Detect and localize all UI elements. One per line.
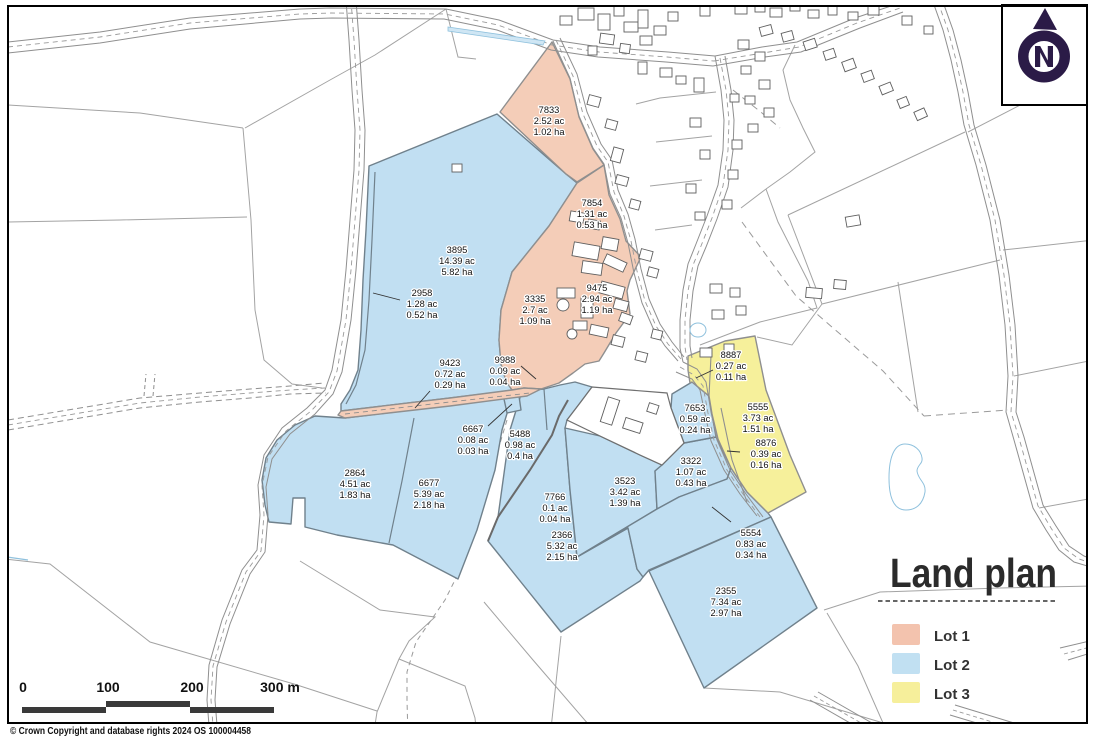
svg-text:2.52 ac: 2.52 ac [534, 116, 565, 126]
svg-text:Lot 2: Lot 2 [934, 657, 970, 674]
svg-text:1.07 ac: 1.07 ac [676, 467, 707, 477]
svg-text:2958: 2958 [412, 288, 433, 298]
svg-text:3523: 3523 [615, 476, 636, 486]
svg-text:5555: 5555 [748, 402, 769, 412]
svg-text:9988: 9988 [495, 355, 516, 365]
svg-text:0.43 ha: 0.43 ha [675, 478, 707, 488]
svg-text:© Crown Copyright and database: © Crown Copyright and database rights 20… [10, 725, 251, 737]
svg-text:0.34 ha: 0.34 ha [735, 550, 767, 560]
svg-text:2.18 ha: 2.18 ha [413, 500, 445, 510]
svg-text:5488: 5488 [510, 429, 531, 439]
svg-text:1.19 ha: 1.19 ha [581, 305, 613, 315]
svg-text:7766: 7766 [545, 492, 566, 502]
svg-text:3.73 ac: 3.73 ac [743, 413, 774, 423]
svg-text:0.52 ha: 0.52 ha [406, 310, 438, 320]
svg-text:0.98 ac: 0.98 ac [505, 440, 536, 450]
svg-text:3.42 ac: 3.42 ac [610, 487, 641, 497]
svg-text:1.02 ha: 1.02 ha [533, 127, 565, 137]
svg-text:6677: 6677 [419, 478, 440, 488]
svg-text:5554: 5554 [741, 528, 762, 538]
svg-text:200: 200 [180, 679, 204, 695]
svg-text:0.83 ac: 0.83 ac [736, 539, 767, 549]
svg-text:9423: 9423 [440, 358, 461, 368]
svg-text:0.09 ac: 0.09 ac [490, 366, 521, 376]
svg-text:2355: 2355 [716, 586, 737, 596]
svg-text:1.28 ac: 1.28 ac [407, 299, 438, 309]
svg-text:300 m: 300 m [260, 679, 300, 695]
svg-text:8887: 8887 [721, 350, 742, 360]
svg-text:100: 100 [96, 679, 120, 695]
svg-text:0.39 ac: 0.39 ac [751, 449, 782, 459]
svg-text:Lot 3: Lot 3 [934, 686, 970, 703]
svg-text:2.7 ac: 2.7 ac [522, 305, 548, 315]
svg-text:Lot 1: Lot 1 [934, 628, 970, 645]
svg-text:2.94 ac: 2.94 ac [582, 294, 613, 304]
svg-text:0.16 ha: 0.16 ha [750, 460, 782, 470]
svg-text:0.04 ha: 0.04 ha [539, 514, 571, 524]
svg-text:6667: 6667 [463, 424, 484, 434]
svg-text:1.83 ha: 1.83 ha [339, 490, 371, 500]
svg-text:2366: 2366 [552, 530, 573, 540]
svg-text:1.09 ha: 1.09 ha [519, 316, 551, 326]
svg-text:3322: 3322 [681, 456, 702, 466]
svg-text:0: 0 [19, 679, 27, 695]
svg-text:0.04 ha: 0.04 ha [489, 377, 521, 387]
svg-text:0.24 ha: 0.24 ha [679, 425, 711, 435]
svg-text:0.03 ha: 0.03 ha [457, 446, 489, 456]
svg-text:4.51 ac: 4.51 ac [340, 479, 371, 489]
svg-text:1.31 ac: 1.31 ac [577, 209, 608, 219]
svg-text:5.39 ac: 5.39 ac [414, 489, 445, 499]
svg-text:8876: 8876 [756, 438, 777, 448]
svg-text:2.15 ha: 2.15 ha [546, 552, 578, 562]
svg-text:7833: 7833 [539, 105, 560, 115]
svg-text:3335: 3335 [525, 294, 546, 304]
svg-text:5.32 ac: 5.32 ac [547, 541, 578, 551]
svg-text:0.29 ha: 0.29 ha [434, 380, 466, 390]
svg-text:1.51 ha: 1.51 ha [742, 424, 774, 434]
svg-text:0.72 ac: 0.72 ac [435, 369, 466, 379]
svg-text:0.4 ha: 0.4 ha [507, 451, 534, 461]
svg-text:9475: 9475 [587, 283, 608, 293]
svg-text:0.1 ac: 0.1 ac [542, 503, 568, 513]
svg-text:3895: 3895 [447, 245, 468, 255]
svg-text:2864: 2864 [345, 468, 366, 478]
svg-text:0.11 ha: 0.11 ha [716, 372, 747, 382]
svg-text:0.27 ac: 0.27 ac [716, 361, 747, 371]
svg-text:14.39 ac: 14.39 ac [439, 256, 475, 266]
svg-text:0.59 ac: 0.59 ac [680, 414, 711, 424]
svg-text:Land plan: Land plan [890, 550, 1057, 596]
svg-text:1.39 ha: 1.39 ha [609, 498, 641, 508]
svg-text:0.08 ac: 0.08 ac [458, 435, 489, 445]
svg-text:2.97 ha: 2.97 ha [710, 608, 742, 618]
svg-text:5.82 ha: 5.82 ha [441, 267, 473, 277]
svg-text:0.53 ha: 0.53 ha [576, 220, 608, 230]
svg-text:7.34 ac: 7.34 ac [711, 597, 742, 607]
svg-text:7854: 7854 [582, 198, 603, 208]
svg-text:7653: 7653 [685, 403, 706, 413]
